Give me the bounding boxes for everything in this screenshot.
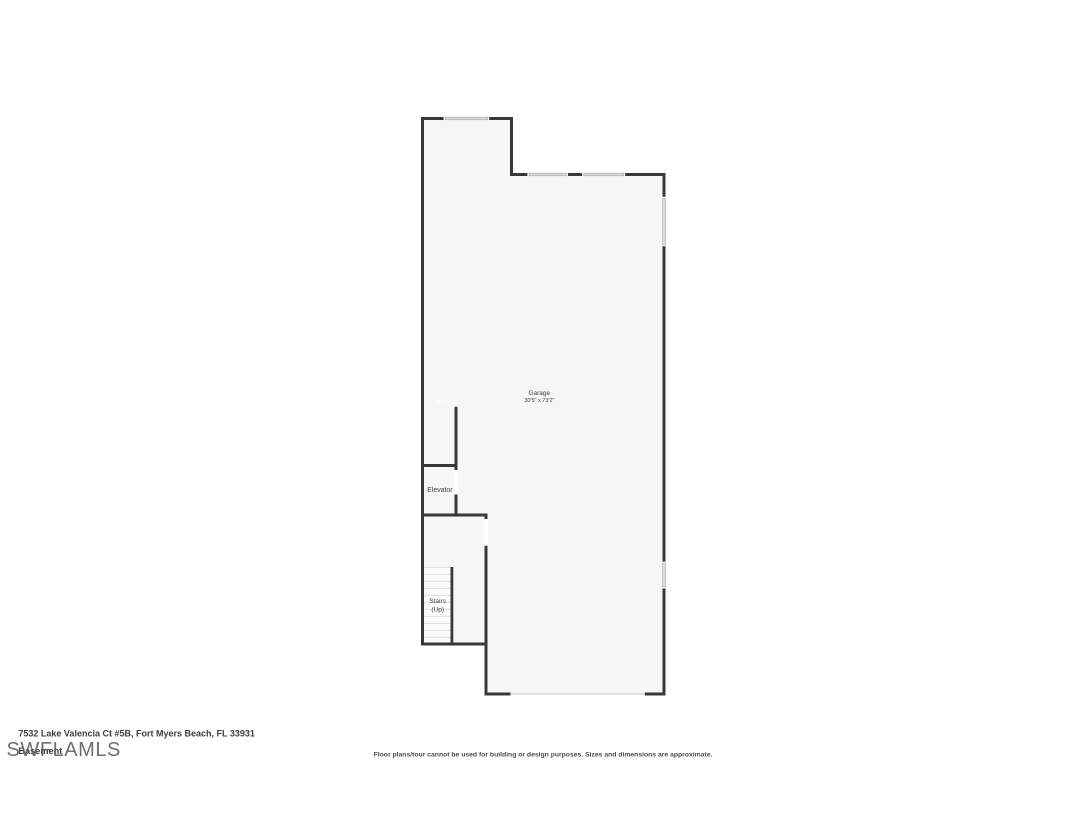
svg-text:Garage: Garage <box>528 390 550 397</box>
svg-text:7532 Lake Valencia Ct #5B, For: 7532 Lake Valencia Ct #5B, Fort Myers Be… <box>18 728 254 738</box>
svg-text:30'5" x 73'2": 30'5" x 73'2" <box>524 398 554 404</box>
svg-text:Elevator: Elevator <box>427 487 453 494</box>
svg-text:SWFLAMLS: SWFLAMLS <box>7 739 121 761</box>
svg-text:9'2" x 5'5": 9'2" x 5'5" <box>436 400 460 406</box>
svg-text:(Up): (Up) <box>431 607 444 614</box>
svg-text:Floor plans/tour cannot be use: Floor plans/tour cannot be used for buil… <box>374 752 713 759</box>
svg-text:Stairs: Stairs <box>429 598 446 605</box>
